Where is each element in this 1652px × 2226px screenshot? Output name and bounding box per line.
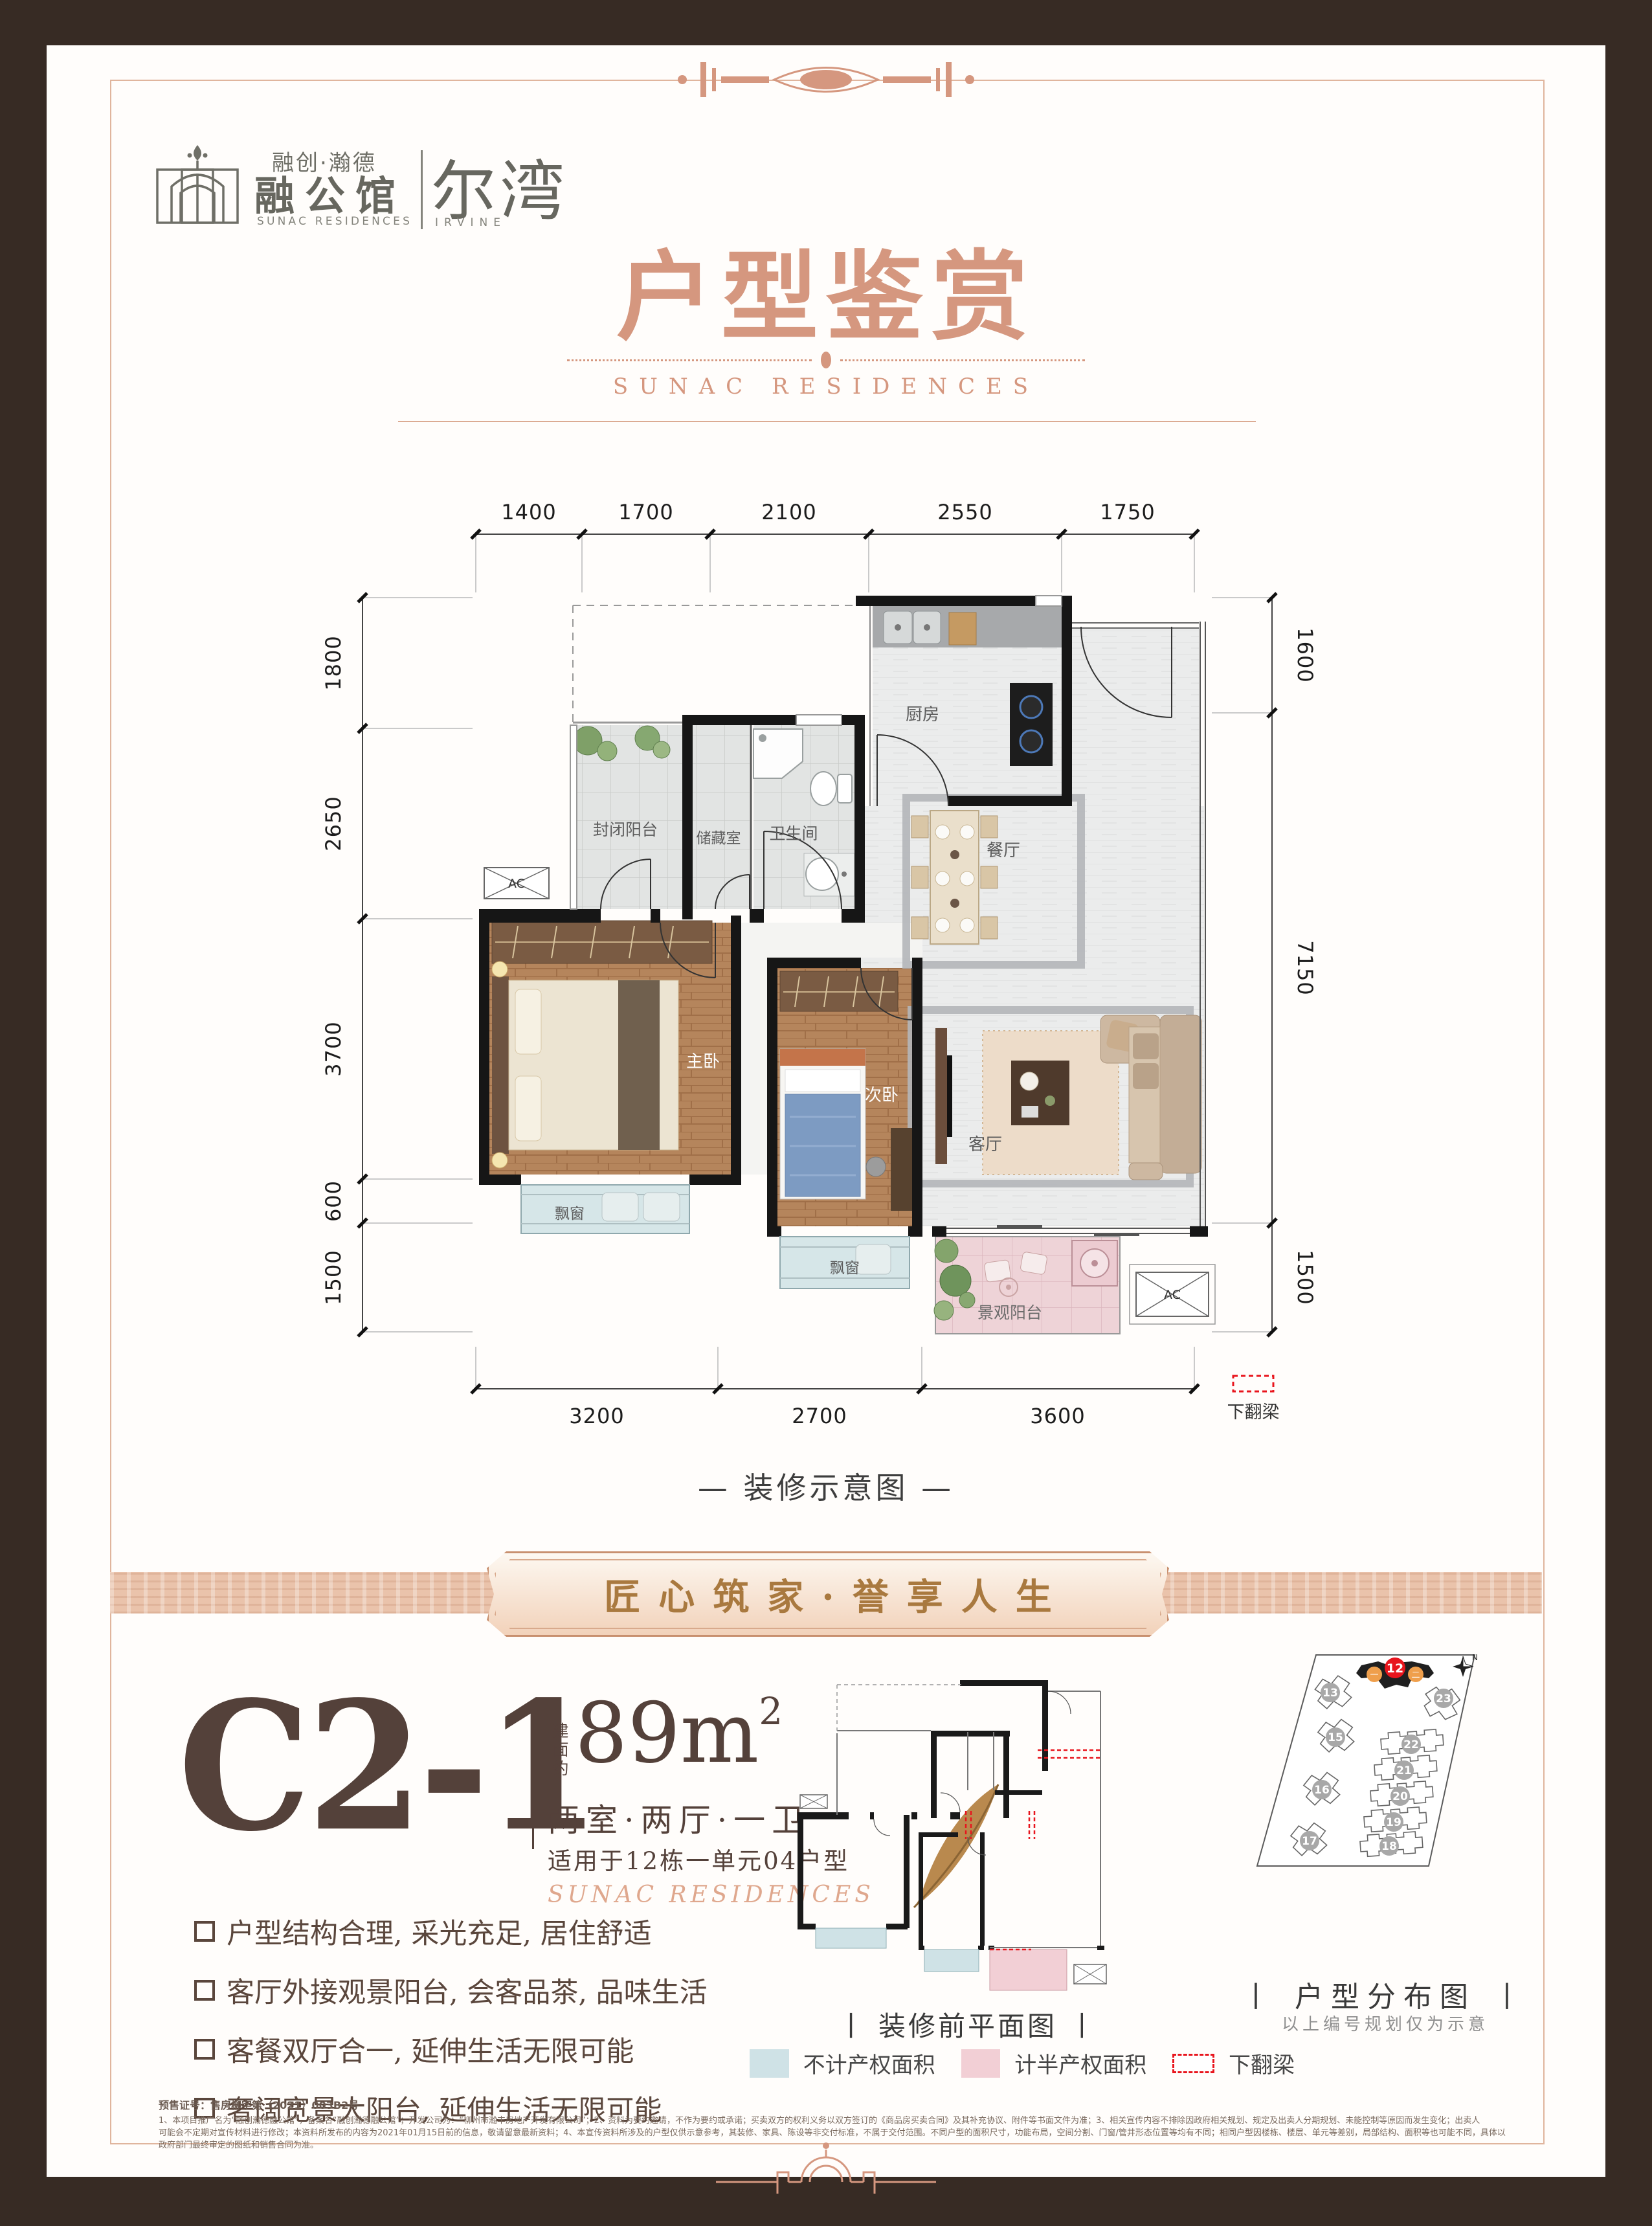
unit-divider — [532, 1720, 534, 1849]
dim-label: 600 — [321, 1180, 346, 1222]
dim-label: 2650 — [321, 796, 346, 851]
room-label-view-balcony: 景观阳台 — [977, 1303, 1042, 1322]
mini-dashed — [837, 1685, 961, 1731]
mini-bay-master — [816, 1928, 886, 1948]
building-badge: 18 — [1381, 1840, 1397, 1853]
feature-text: 户型结构合理, 采光充足, 居住舒适 — [227, 1911, 652, 1951]
ac-label: AC — [1164, 1288, 1181, 1302]
page-title: 户型鉴赏 — [0, 219, 1652, 359]
mini-view-balcony — [990, 1950, 1067, 1990]
dim-label: 2550 — [937, 500, 992, 524]
header-rule — [398, 421, 1256, 422]
footer-arch-icon — [716, 2137, 936, 2201]
floorplan-predecoration — [774, 1661, 1162, 2004]
siteplan-note: 以上编号规划仅为示意 — [1223, 2011, 1547, 2035]
header-ornament-icon — [664, 57, 988, 102]
building-badge: 15 — [1328, 1731, 1343, 1744]
feature-text: 客厅外接观景阳台, 会客品茶, 品味生活 — [227, 1970, 708, 2010]
mini-beams — [966, 1750, 1100, 1950]
unit-circle-label: 一 — [1370, 1670, 1378, 1680]
banner-slogan: 匠心筑家·誉享人生 — [586, 1568, 1070, 1621]
square-bullet-icon — [194, 1921, 215, 1942]
dim-label: 3200 — [569, 1404, 624, 1428]
unit-code: C2-1 — [178, 1678, 597, 1855]
divider-oval-icon — [821, 352, 831, 368]
banner-plaque: 匠心筑家·誉享人生 — [487, 1551, 1169, 1637]
room-label-bay-master: 飘窗 — [555, 1206, 585, 1222]
dim-label: 1750 — [1100, 500, 1155, 524]
brand-logo-icon — [152, 137, 243, 231]
unit-circle-label: 二 — [1411, 1670, 1420, 1680]
square-bullet-icon — [194, 2039, 215, 2060]
beam-label: 下翻梁 — [1227, 1402, 1280, 1422]
mini-walls — [798, 1680, 1104, 1950]
legend: 不计产权面积 计半产权面积 下翻梁 — [750, 2047, 1306, 2079]
feature-item: 客厅外接观景阳台, 会客品茶, 品味生活 — [194, 1970, 842, 2010]
mini-bay-second — [924, 1950, 979, 1972]
building-badge: 17 — [1302, 1835, 1317, 1848]
legend-beam-swatch — [1172, 2054, 1214, 2073]
disclaimer-line: 预售证号：售房柳字第（2021）003B2号 — [159, 2097, 1518, 2112]
siteplan: 一 二 12 13 23 15 22 21 16 20 19 18 17 N — [1249, 1651, 1521, 1897]
room-label-bay-second: 飘窗 — [830, 1260, 860, 1277]
room-label-master: 主卧 — [686, 1052, 720, 1072]
room-label-closed-balcony: 封闭阳台 — [593, 820, 658, 839]
unit-area-value: 89m2 — [575, 1692, 783, 1775]
room-label-living: 客厅 — [968, 1135, 1002, 1154]
building-badge: 20 — [1392, 1790, 1408, 1803]
legend-label: 计半产权面积 — [1014, 2047, 1146, 2079]
page-subtitle: SUNAC RESIDENCES — [0, 374, 1652, 399]
room-label-kitchen: 厨房 — [906, 705, 939, 725]
plan-caption: — 装修示意图 — — [0, 1465, 1652, 1507]
dim-label: 1400 — [501, 500, 556, 524]
building-badge: 19 — [1386, 1816, 1401, 1829]
feature-item: 户型结构合理, 采光充足, 居住舒适 — [194, 1911, 842, 1951]
dim-label: 1500 — [1293, 1250, 1317, 1305]
legend-pink-swatch — [961, 2049, 1001, 2078]
legend-label: 不计产权面积 — [803, 2047, 935, 2079]
building-badge: 22 — [1403, 1738, 1419, 1751]
mini-thin-walls — [837, 1691, 1100, 1948]
room-label-bath: 卫生间 — [769, 824, 818, 843]
beam-marker: 下翻梁 — [1227, 1376, 1280, 1422]
mini-doors — [874, 1691, 1071, 1855]
dim-label: 1800 — [321, 635, 346, 690]
dim-label: 1700 — [618, 500, 673, 524]
open-air-dashed-line — [573, 605, 867, 723]
square-bullet-icon — [194, 1980, 215, 2001]
dim-label: 3700 — [321, 1021, 346, 1076]
disclaimer-line: 1、本项目推广名为“融创瀚德融公馆”，备案名“融创瀚德融公馆”；开发公司为：“柳… — [159, 2115, 1518, 2127]
predecoration-caption: 丨 装修前平面图 丨 — [774, 2005, 1162, 2044]
feature-text: 客餐双厅合一, 延伸生活无限可能 — [227, 2029, 634, 2069]
siteplan-caption: 丨 户型分布图 丨 — [1223, 1973, 1547, 2015]
north-label: N — [1472, 1653, 1478, 1662]
floorplan-main: 1400 1700 2100 2550 1750 1800 2650 3700 … — [298, 479, 1372, 1489]
building-12-badge: 12 — [1387, 1661, 1403, 1676]
title-dotted-divider — [567, 352, 1085, 368]
ac-label: AC — [508, 877, 525, 891]
dim-label: 1500 — [321, 1250, 346, 1305]
dim-label: 1600 — [1293, 627, 1317, 682]
brand-name: 融公馆 — [254, 163, 406, 221]
building-badge: 16 — [1314, 1784, 1330, 1797]
poster: 融创·瀚德 融公馆 SUNAC RESIDENCES 尔湾 IRVINE 户型鉴… — [0, 0, 1652, 2226]
building-badge: 21 — [1396, 1764, 1412, 1777]
dim-label: 2100 — [761, 500, 816, 524]
dim-label: 3600 — [1030, 1404, 1085, 1428]
feature-item: 客餐双厅合一, 延伸生活无限可能 — [194, 2029, 842, 2069]
logo-divider — [421, 150, 423, 229]
room-label-storage: 储藏室 — [697, 830, 741, 847]
building-badge: 23 — [1436, 1692, 1451, 1705]
unit-area-label: 建面约 — [548, 1722, 571, 1793]
legend-label: 下翻梁 — [1229, 2047, 1295, 2079]
room-label-dining: 餐厅 — [987, 841, 1020, 860]
dim-label: 2700 — [792, 1404, 847, 1428]
building-badge: 13 — [1323, 1687, 1338, 1700]
dim-label: 7150 — [1293, 940, 1317, 995]
legend-blue-swatch — [750, 2049, 789, 2078]
site-boundary — [1257, 1655, 1475, 1866]
room-label-second: 次卧 — [865, 1086, 899, 1105]
unit-layout: 两室·两厅·一卫 — [548, 1795, 810, 1841]
